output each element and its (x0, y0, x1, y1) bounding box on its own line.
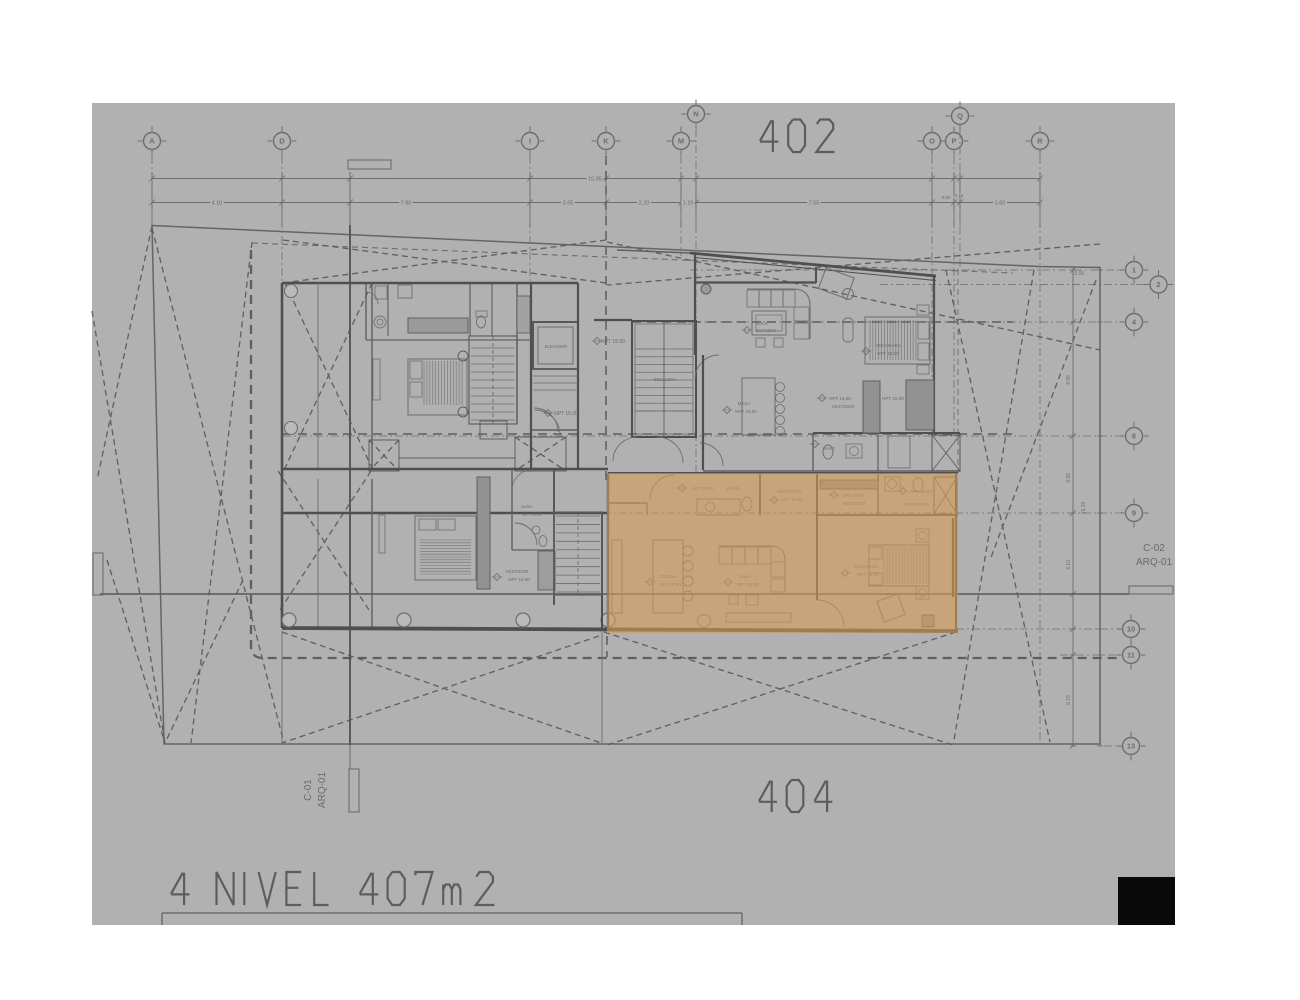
svg-text:NPT 15.00: NPT 15.00 (877, 351, 899, 356)
svg-text:1: 1 (1132, 266, 1136, 275)
svg-text:N: N (693, 110, 698, 119)
svg-text:C-02: C-02 (1143, 543, 1165, 554)
svg-text:NPT 15.00: NPT 15.00 (735, 409, 757, 414)
svg-text:D: D (279, 137, 285, 146)
svg-text:4.10: 4.10 (1066, 560, 1072, 570)
svg-text:P: P (951, 137, 956, 146)
svg-text:ARQ-01: ARQ-01 (1136, 557, 1173, 568)
svg-text:NPT 15.00: NPT 15.00 (508, 577, 530, 582)
svg-text:4.95: 4.95 (1066, 375, 1072, 385)
svg-text:I: I (529, 137, 531, 146)
svg-text:15.10: 15.10 (1081, 502, 1087, 515)
svg-text:Q: Q (957, 112, 963, 121)
svg-text:ESCALERA: ESCALERA (654, 377, 677, 382)
svg-text:15.05: 15.05 (588, 177, 602, 183)
svg-text:7.55: 7.55 (809, 201, 820, 207)
svg-text:2: 2 (1156, 280, 1160, 289)
svg-text:C-01: C-01 (303, 779, 314, 801)
svg-text:NPT 15.00: NPT 15.00 (554, 411, 578, 417)
svg-text:0.60: 0.60 (942, 195, 951, 200)
svg-text:VESTIDOR: VESTIDOR (505, 569, 529, 574)
svg-text:MESA: MESA (738, 401, 751, 406)
svg-text:4.10: 4.10 (212, 201, 223, 207)
svg-text:15.00: 15.00 (1072, 271, 1085, 277)
svg-text:11: 11 (1127, 651, 1135, 660)
svg-text:NPT 15.00: NPT 15.00 (522, 512, 542, 517)
svg-text:SALA: SALA (756, 321, 768, 326)
svg-text:O: O (929, 137, 935, 146)
svg-text:BAÑO: BAÑO (521, 504, 532, 509)
svg-text:2.20: 2.20 (639, 201, 650, 207)
svg-text:10: 10 (1127, 625, 1135, 634)
svg-text:13: 13 (1127, 742, 1135, 751)
svg-text:ESTUDIO: ESTUDIO (756, 328, 777, 333)
svg-text:RECAMARA: RECAMARA (875, 343, 901, 348)
svg-text:VESTIDOR: VESTIDOR (831, 404, 855, 409)
svg-text:9: 9 (1132, 509, 1136, 518)
svg-text:NPT 15.00: NPT 15.00 (882, 396, 904, 401)
svg-text:0.15: 0.15 (955, 193, 964, 198)
svg-text:A: A (149, 137, 155, 146)
svg-text:BAÑO: BAÑO (823, 446, 836, 451)
svg-text:1.60: 1.60 (995, 201, 1006, 207)
svg-text:5.15: 5.15 (1066, 695, 1072, 705)
svg-text:1.10: 1.10 (683, 201, 694, 207)
svg-text:R: R (1037, 137, 1043, 146)
svg-text:ARQ-01: ARQ-01 (317, 772, 328, 809)
svg-text:3.65: 3.65 (563, 201, 574, 207)
svg-text:7.90: 7.90 (401, 201, 412, 207)
svg-text:K: K (603, 137, 609, 146)
svg-text:M: M (678, 137, 684, 146)
svg-text:NPT 19.00: NPT 19.00 (601, 339, 625, 345)
svg-text:ELEVADOR: ELEVADOR (545, 344, 568, 349)
svg-text:NPT 15.00: NPT 15.00 (829, 396, 851, 401)
svg-text:3.30: 3.30 (1066, 473, 1072, 483)
svg-text:6: 6 (1132, 432, 1136, 441)
